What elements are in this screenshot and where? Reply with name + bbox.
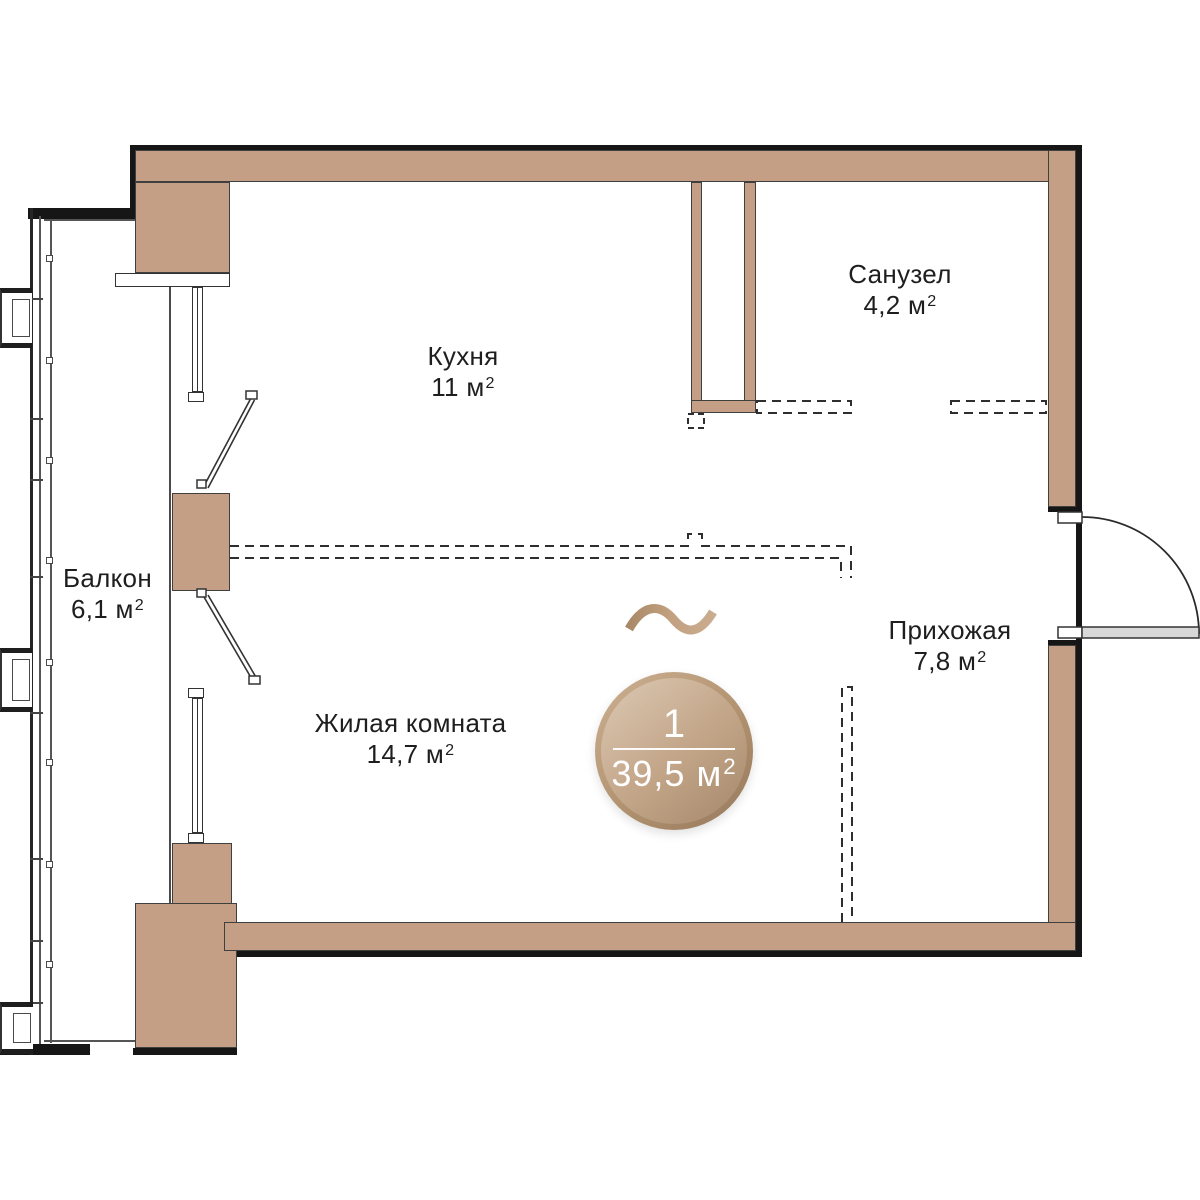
shaft-footing-dashed (688, 414, 704, 428)
room-name: Прихожая (830, 615, 1070, 646)
glazing-divider (30, 479, 43, 481)
mullion-mark (46, 255, 53, 262)
mullion-mark (46, 457, 53, 464)
glazing-divider (30, 940, 43, 942)
bathroom-wall-dashed-left (757, 401, 851, 413)
kitchen-window (192, 287, 203, 392)
window-glass-line (197, 699, 199, 832)
room-label-balcony: Балкон 6,1 м2 (5, 563, 210, 629)
apartment-badge: 1 39,5 м2 (595, 672, 753, 830)
room-label-kitchen: Кухня 11 м2 (363, 341, 563, 407)
entrance-door-leaf (1082, 627, 1199, 638)
balcony-top-wall (28, 208, 135, 219)
hallway-partition-dashed (842, 687, 852, 922)
window-sill (115, 273, 230, 287)
room-name: Санузел (800, 259, 1000, 290)
badge-divider (613, 748, 736, 750)
shaft-wall-bottom (691, 400, 756, 413)
balcony-door-upper-leaf (208, 400, 255, 488)
room-name: Балкон (5, 563, 210, 594)
window-bracket (188, 392, 204, 402)
room-label-living: Жилая комната 14,7 м2 (283, 708, 538, 774)
mullion-mark (46, 357, 53, 364)
wall-bottom-left-block (135, 903, 237, 1048)
room-area: 14,7 м2 (283, 739, 538, 774)
balcony-door-lower-leaf (208, 595, 257, 679)
wall-right-lower (1048, 645, 1076, 951)
room-area: 4,2 м2 (800, 290, 1000, 325)
room-label-bathroom: Санузел 4,2 м2 (800, 259, 1000, 325)
wall-bottom (224, 922, 1076, 951)
room-name: Кухня (363, 341, 563, 372)
door-hinge (197, 480, 206, 488)
window-glass-line (197, 288, 199, 391)
glazing-divider (30, 418, 43, 420)
room-label-hallway: Прихожая 7,8 м2 (830, 615, 1070, 681)
mullion-mark (46, 659, 53, 666)
door-bracket (246, 391, 257, 399)
glazing-divider (30, 712, 43, 714)
window-bracket (188, 833, 204, 843)
facade-pillar-inner (12, 299, 30, 337)
outline-bottom-left (133, 1048, 237, 1055)
balcony-glazing-mid (39, 216, 41, 1044)
entrance-door-swing-arc (1082, 517, 1199, 634)
mullion-mark (46, 861, 53, 868)
wave-decoration (629, 609, 713, 630)
living-room-window (192, 698, 203, 833)
facade-pillar (0, 288, 32, 348)
glazing-divider (30, 858, 43, 860)
facade-pillar (0, 1002, 33, 1054)
wall-right-upper (1048, 150, 1076, 507)
balcony-glazing-inner (50, 219, 52, 1043)
balcony-door-lower-leaf (204, 597, 253, 681)
room-name: Жилая комната (283, 708, 538, 739)
facade-pillar-inner (13, 1013, 31, 1043)
wall-bottom-left-block (172, 843, 232, 905)
bathroom-wall-dashed-right (951, 401, 1046, 413)
badge-total-area: 39,5 м2 (611, 753, 736, 800)
window-bracket (188, 688, 204, 698)
outline-right (1076, 145, 1082, 957)
floor-plan: Кухня 11 м2 Санузел 4,2 м2 Балкон 6,1 м2… (0, 0, 1200, 1200)
room-area: 6,1 м2 (5, 594, 210, 629)
apartment-badge-inner: 1 39,5 м2 (601, 678, 747, 824)
shaft-wall-left (691, 182, 702, 413)
outline-bottom (224, 951, 1082, 957)
wall-top-left-block (135, 182, 230, 273)
facade-pillar (0, 648, 32, 712)
door-bracket (249, 676, 260, 684)
balcony-door-upper-leaf (204, 398, 251, 486)
door-jamb-cap-top (1048, 507, 1076, 512)
wall-top (135, 150, 1076, 182)
room-area: 11 м2 (363, 372, 563, 407)
kitchen-partition-dashed (230, 534, 851, 578)
shaft-wall-right (744, 182, 756, 413)
badge-room-count: 1 (663, 703, 685, 745)
mullion-mark (46, 759, 53, 766)
mullion-mark (46, 961, 53, 968)
facade-pillar-inner (12, 659, 30, 701)
kitchen-partition-dashed-inner (230, 558, 841, 578)
room-area: 7,8 м2 (830, 646, 1070, 681)
